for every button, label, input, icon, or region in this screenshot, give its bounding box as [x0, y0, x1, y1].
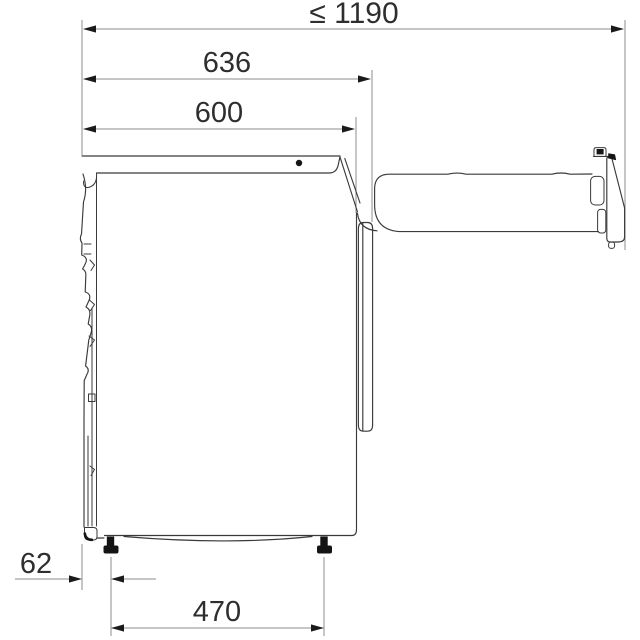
open-door	[375, 148, 625, 249]
door-bottom-nub	[609, 242, 615, 248]
door-arm-outline	[375, 173, 599, 232]
machine-body	[80, 156, 377, 554]
arrow-left-icon	[83, 125, 96, 132]
front-foot-flange	[317, 546, 332, 554]
arrow-left-icon	[111, 575, 124, 582]
dim-label-body-depth: 600	[195, 97, 243, 129]
dim-rear-to-foot: 62	[15, 548, 156, 583]
dim-foot-spacing: 470	[111, 596, 324, 632]
arrow-left-icon	[83, 75, 96, 82]
rear-foot-stem	[107, 537, 114, 547]
dim-body-depth: 600	[83, 97, 355, 133]
top-panel-screw-dot	[296, 160, 302, 166]
rear-foot	[104, 537, 119, 554]
door-inner-moulding	[598, 209, 606, 233]
extension-lines	[82, 20, 625, 636]
bottom-edge	[97, 536, 352, 542]
dim-label-rear-to-foot: 62	[20, 548, 52, 580]
dimension-drawing-page: ≤ 1190 636 600 62 470	[0, 0, 640, 640]
front-foot-stem	[320, 537, 327, 547]
rear-base-bracket-shadow	[85, 534, 92, 540]
door-handle-grip	[597, 149, 604, 154]
rear-panel-profile	[80, 174, 91, 527]
arrow-right-icon	[342, 125, 355, 132]
arrow-right-icon	[358, 75, 371, 82]
arrow-left-icon	[83, 25, 96, 32]
dim-depth-with-door: 636	[83, 47, 371, 83]
front-fascia-slope	[340, 157, 377, 231]
appliance-dimension-diagram: ≤ 1190 636 600 62 470	[0, 0, 640, 640]
door-panel-outline	[594, 156, 625, 242]
arrow-left-icon	[111, 624, 124, 631]
arrow-right-icon	[611, 25, 624, 32]
door-hinge-wedge	[608, 153, 616, 160]
front-panel	[352, 213, 357, 536]
door-window-profile	[591, 176, 604, 205]
dim-label-foot-spacing: 470	[193, 596, 241, 628]
front-foot	[317, 537, 332, 554]
dim-label-depth-with-door: 636	[203, 47, 251, 79]
arrow-right-icon	[69, 575, 82, 582]
dim-total-depth-door-open: ≤ 1190	[83, 0, 624, 33]
arrow-right-icon	[311, 624, 324, 631]
rear-foot-flange	[104, 546, 119, 554]
door-frame-bulge	[358, 223, 372, 432]
dim-label-total-depth: ≤ 1190	[309, 0, 398, 30]
